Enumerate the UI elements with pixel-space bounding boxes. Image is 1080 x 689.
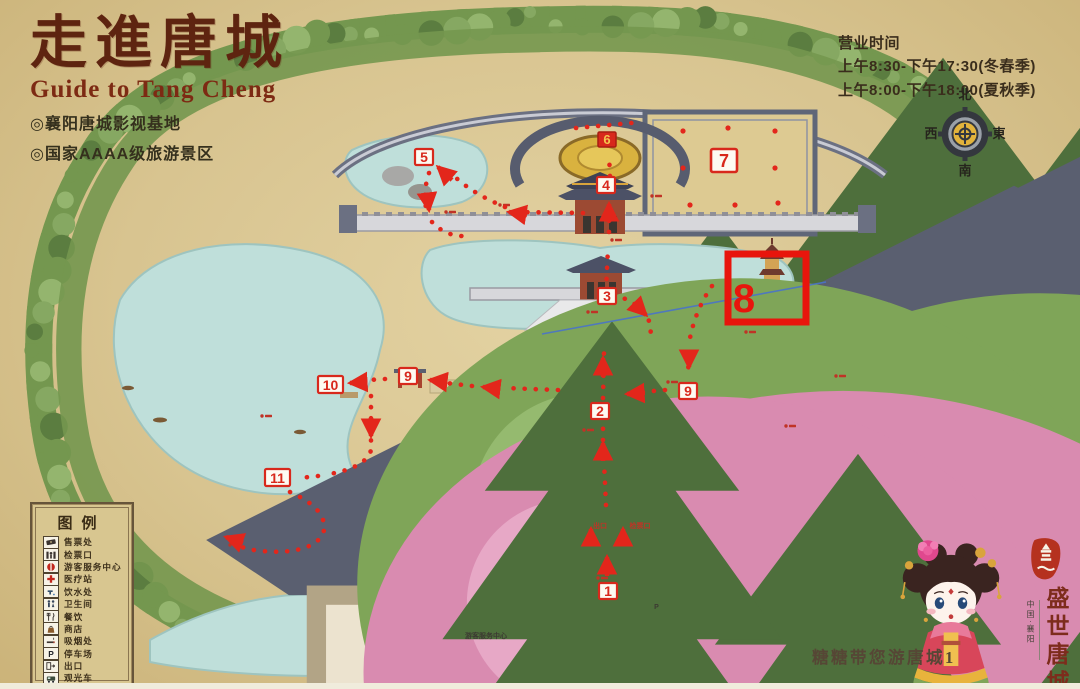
- stop-4[interactable]: 4: [597, 177, 615, 193]
- svg-text:2: 2: [596, 403, 604, 419]
- page-subtitle-en: Guide to Tang Cheng: [30, 76, 330, 104]
- header-bullet-1: ◎襄阳唐城影视基地: [30, 110, 330, 134]
- page-title: 走進唐城: [30, 14, 330, 74]
- svg-text:4: 4: [602, 177, 610, 193]
- svg-text:9: 9: [684, 383, 692, 399]
- svg-text:3: 3: [603, 288, 611, 304]
- svg-text:9: 9: [404, 368, 412, 384]
- svg-text:8: 8: [733, 277, 755, 321]
- mascot-caption: 糖糖带您游唐城1: [812, 644, 956, 668]
- svg-text:10: 10: [323, 377, 339, 393]
- legend-item: 饮水处: [43, 586, 128, 598]
- legend-item: 售票处: [43, 536, 128, 548]
- legend-title: 图例: [43, 512, 120, 533]
- visitor-center-icon: [43, 560, 59, 573]
- svg-text:1: 1: [604, 583, 612, 599]
- shop-icon: [43, 622, 59, 635]
- exit-gate-label: 出口: [593, 521, 607, 530]
- check-gate-label: 检票口: [630, 521, 651, 530]
- compass-south: 南: [958, 163, 971, 178]
- bottom-strip: [0, 683, 1080, 689]
- stop-1[interactable]: 1: [599, 583, 617, 599]
- service-center-label: 游客服务中心: [465, 631, 507, 640]
- medical-icon: [43, 573, 59, 586]
- seal-subtext: 中国·襄阳: [1025, 600, 1040, 660]
- compass-rose: 北 南 西 東: [923, 86, 1007, 183]
- header-bullet-2: ◎国家AAAA级旅游景区: [30, 140, 330, 164]
- legend-item: 商店: [43, 623, 128, 635]
- seal-icon: [1028, 536, 1064, 582]
- smoking-icon: [43, 635, 59, 648]
- hours-title: 营业时间: [838, 32, 1036, 55]
- stop-9[interactable]: 9: [399, 368, 417, 384]
- svg-text:7: 7: [719, 151, 729, 171]
- legend-item: P停车场: [43, 648, 128, 660]
- seal-title: 盛世唐城: [1044, 586, 1067, 689]
- drinking-water-icon: [43, 585, 59, 598]
- legend-item: 卫生间: [43, 598, 128, 610]
- stop-5[interactable]: 5: [415, 149, 433, 165]
- compass-north: 北: [958, 87, 971, 102]
- stop-2[interactable]: 2: [591, 403, 609, 419]
- parking-icon: P: [43, 647, 59, 660]
- brand-seal-block: 中国·襄阳 盛世唐城: [1022, 536, 1070, 689]
- legend-item: 出口: [43, 660, 128, 672]
- stop-9-east[interactable]: 9: [679, 383, 697, 399]
- legend-item: 餐饮: [43, 610, 128, 622]
- stop-11[interactable]: 11: [265, 469, 290, 486]
- legend-item: 游客服务中心: [43, 561, 128, 573]
- dining-icon: [43, 610, 59, 623]
- legend-item: 检票口: [43, 548, 128, 560]
- ticket-office-icon: [43, 536, 59, 549]
- toilet-icon: [43, 598, 59, 611]
- legend-item: 吸烟处: [43, 635, 128, 647]
- hours-line-1: 上午8:30-下午17:30(冬春季): [838, 55, 1036, 78]
- stop-3[interactable]: 3: [598, 288, 616, 304]
- tangcheng-map-page: 出口 检票口 游客服务中心 P: [0, 0, 1080, 689]
- compass-east: 東: [992, 126, 1005, 141]
- exit-icon: [43, 660, 59, 673]
- legend-panel: 图例 售票处 检票口 游客服务中心 医疗站 饮水处 卫生间 餐饮 商店 吸烟处 …: [30, 502, 134, 687]
- compass-icon: [938, 107, 992, 161]
- stop-7[interactable]: 7: [711, 149, 737, 172]
- svg-text:5: 5: [420, 149, 428, 165]
- compass-west: 西: [924, 126, 937, 141]
- svg-text:6: 6: [603, 132, 610, 147]
- parking-label: P: [654, 604, 659, 611]
- svg-text:11: 11: [270, 470, 285, 486]
- ticket-gate-icon: [43, 548, 59, 561]
- stop-10[interactable]: 10: [318, 376, 343, 393]
- svg-text:P: P: [48, 649, 54, 659]
- legend-item: 医疗站: [43, 573, 128, 585]
- header: 走進唐城 Guide to Tang Cheng ◎襄阳唐城影视基地 ◎国家AA…: [30, 14, 330, 164]
- stop-6[interactable]: 6: [598, 132, 616, 147]
